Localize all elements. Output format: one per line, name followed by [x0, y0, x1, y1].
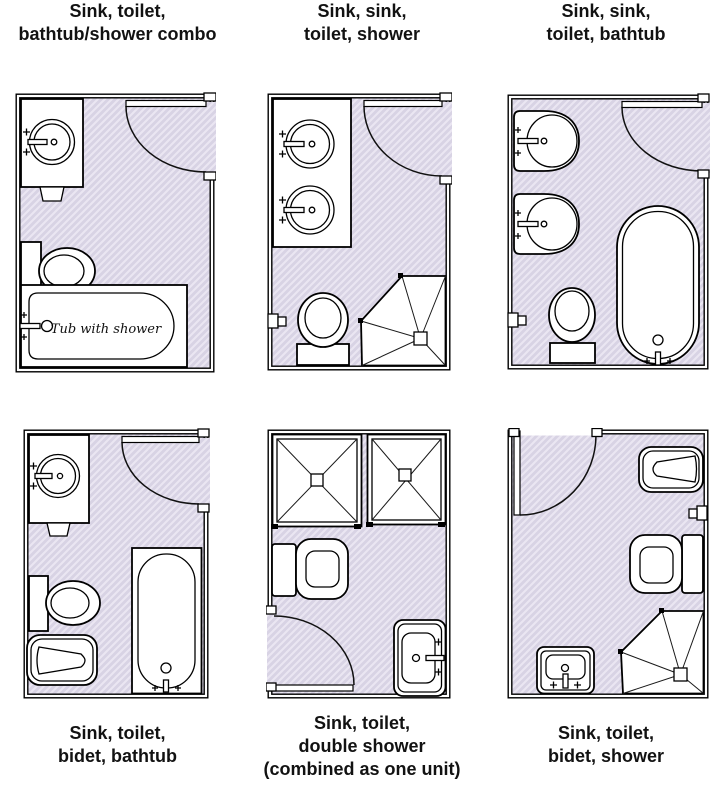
label-line: bidet, shower: [492, 745, 720, 768]
tub-drain: [161, 663, 171, 673]
toilet: [549, 288, 595, 363]
double-vanity-sinks: [273, 99, 351, 247]
label-line: toilet, shower: [242, 23, 482, 46]
tub-with-shower-label: Tub with shower: [51, 322, 162, 337]
floorplan-sink-sink-toilet-shower: [266, 92, 452, 372]
label-line: Sink, sink,: [242, 0, 482, 23]
floorplan-sink-toilet-tubshower-combo: Tub with shower: [14, 92, 216, 374]
bidet: [27, 635, 97, 685]
toilet: [272, 539, 348, 599]
floorplan-sink-toilet-bidet-bathtub: [22, 428, 210, 700]
label-line: Sink, toilet,: [242, 712, 482, 735]
plan-label-top-2: Sink, sink, toilet, shower: [242, 0, 482, 46]
label-line: double shower: [242, 735, 482, 758]
plan-label-top-1: Sink, toilet, bathtub/shower combo: [0, 0, 235, 46]
label-line: Sink, toilet,: [492, 722, 720, 745]
wall-sink: [537, 647, 594, 694]
plan-label-bottom-1: Sink, toilet, bidet, bathtub: [0, 722, 235, 768]
label-line: toilet, bathtub: [492, 23, 720, 46]
label-line: Sink, toilet,: [0, 722, 235, 745]
vanity-sink: [21, 99, 83, 201]
bathtub-shower-combo: Tub with shower: [20, 285, 187, 367]
pedestal-sink: [514, 111, 579, 171]
shower-stall-left: [271, 435, 362, 530]
bidet: [639, 447, 703, 492]
toilet: [630, 535, 703, 593]
bathroom-layouts-diagram: Sink, toilet, bathtub/shower combo Sink,…: [0, 0, 720, 807]
vanity-sink: [29, 435, 89, 536]
label-line: Sink, sink,: [492, 0, 720, 23]
shower-drain: [399, 469, 411, 481]
label-line: bidet, bathtub: [0, 745, 235, 768]
vanity-ledge: [40, 187, 64, 201]
freestanding-bathtub: [617, 206, 699, 365]
wall-sink: [394, 620, 446, 696]
label-line: (combined as one unit): [242, 758, 482, 781]
sink-drain: [562, 665, 569, 672]
shower-drain: [674, 668, 687, 681]
plan-label-bottom-2: Sink, toilet, double shower (combined as…: [242, 712, 482, 781]
label-line: bathtub/shower combo: [0, 23, 235, 46]
plan-label-top-3: Sink, sink, toilet, bathtub: [492, 0, 720, 46]
shower-drain: [414, 332, 427, 345]
plan-label-bottom-3: Sink, toilet, bidet, shower: [492, 722, 720, 768]
sink-drain: [413, 655, 420, 662]
pedestal-sink: [514, 194, 579, 254]
floorplan-sink-toilet-bidet-shower: [506, 428, 710, 700]
tub-drain: [653, 335, 663, 345]
shower-stall-right: [366, 435, 446, 528]
vanity-ledge: [47, 523, 70, 536]
floorplan-sink-sink-toilet-bathtub: [506, 93, 710, 371]
label-line: Sink, toilet,: [0, 0, 235, 23]
bathtub: [132, 548, 202, 694]
toilet: [297, 293, 349, 365]
shower-drain: [311, 474, 323, 486]
floorplan-sink-toilet-double-shower: [266, 428, 452, 700]
